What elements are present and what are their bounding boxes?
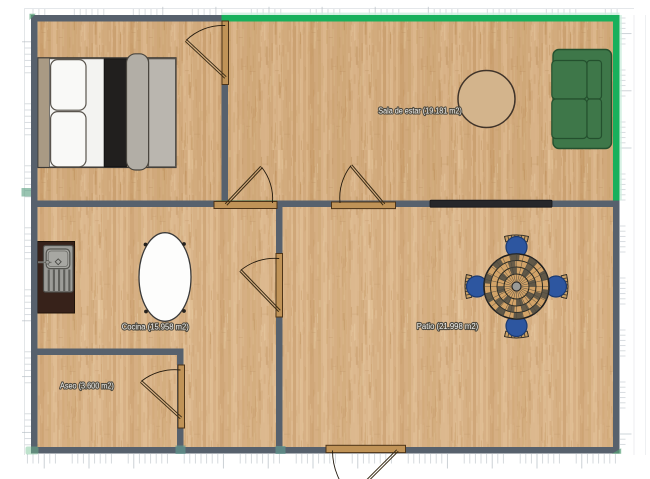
svg-text:Patio (21.998 m2): Patio (21.998 m2)	[417, 322, 479, 331]
svg-text:Sala de estar (19.181 m2): Sala de estar (19.181 m2)	[378, 107, 462, 116]
svg-text:Aseo (3.600 m2): Aseo (3.600 m2)	[60, 382, 114, 391]
svg-text:Cocina (15.958 m2): Cocina (15.958 m2)	[122, 323, 189, 332]
